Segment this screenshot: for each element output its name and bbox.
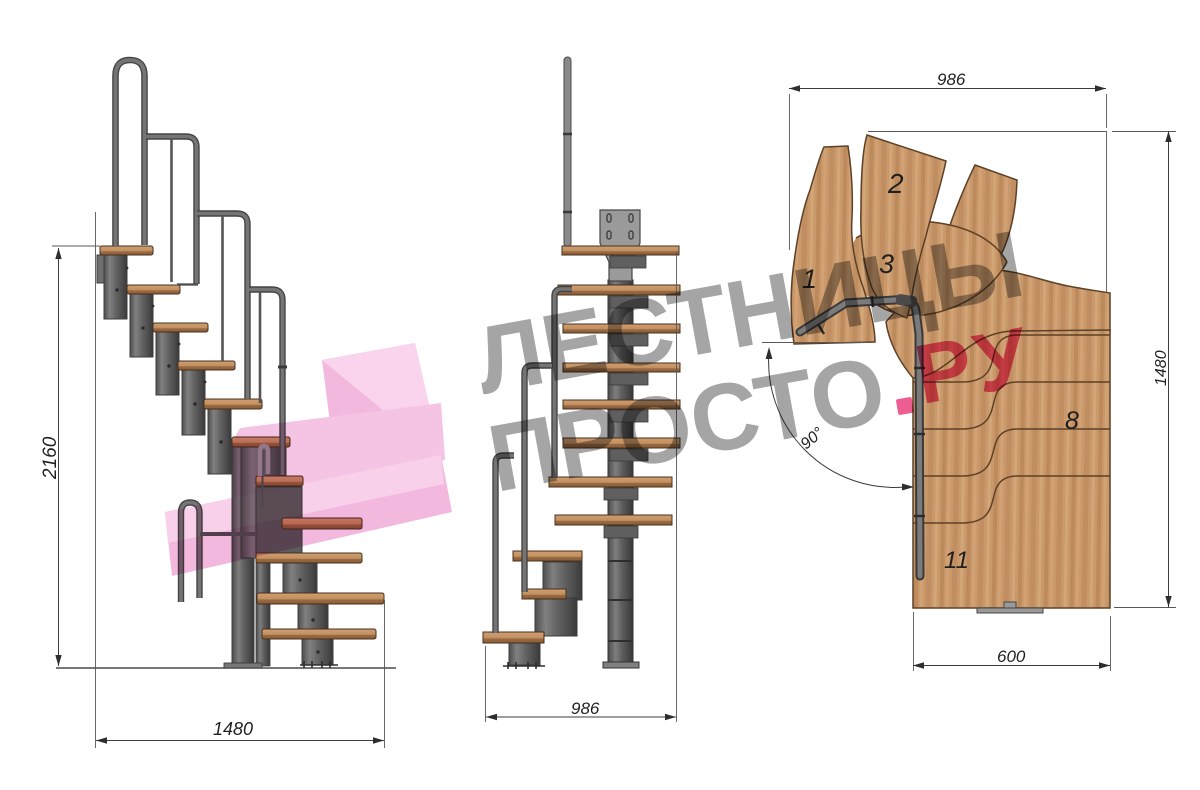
svg-text:986: 986 [937, 70, 966, 89]
svg-text:2: 2 [887, 168, 904, 199]
svg-text:1480: 1480 [1153, 350, 1170, 386]
svg-text:600: 600 [997, 647, 1026, 666]
svg-text:986: 986 [571, 699, 600, 718]
svg-text:2160: 2160 [40, 436, 61, 480]
svg-text:1480: 1480 [213, 719, 253, 739]
svg-text:11: 11 [944, 547, 969, 574]
svg-text:8: 8 [1065, 407, 1079, 435]
